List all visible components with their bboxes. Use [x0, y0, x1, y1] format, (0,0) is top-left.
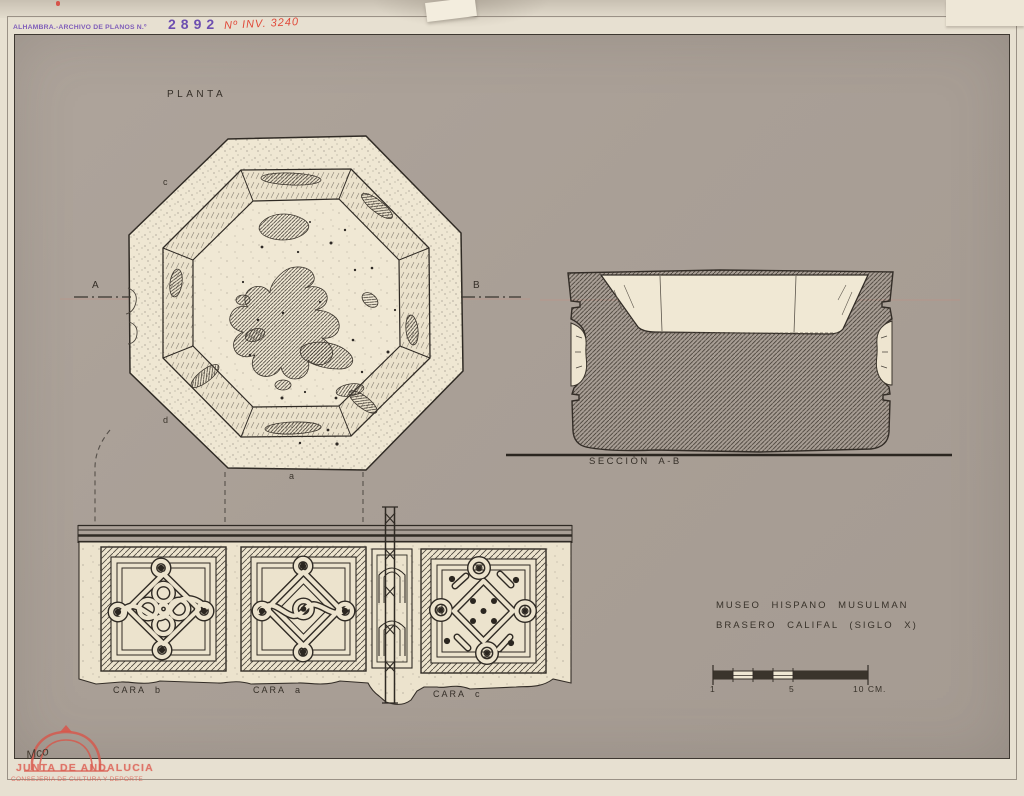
face-letter-a: a [289, 471, 294, 481]
face-letter-c: c [163, 177, 168, 187]
junta-org-text: JUNTA DE ANDALUCIA [16, 762, 154, 774]
section-marker-b: B [473, 280, 481, 291]
caption-museum: MUSEO HISPANO MUSULMAN [716, 600, 909, 611]
scanned-archive-plan: { "stamp": { "archive_label": "ALHAMBRA.… [0, 0, 1024, 796]
cara-b-label: CARA b [113, 685, 162, 695]
junta-stamp: Mco JUNTA DE ANDALUCIA CONSEJERIA DE CUL… [8, 720, 168, 796]
scale-tick-1: 1 [710, 684, 716, 694]
cara-a-label: CARA a [253, 685, 302, 695]
junta-dept-text: CONSEJERIA DE CULTURA Y DEPORTE [11, 776, 143, 783]
face-letter-d: d [163, 415, 168, 425]
elevation-view [78, 507, 572, 704]
section-view [506, 270, 952, 455]
cara-c-label: CARA c [433, 689, 482, 699]
plan-octagon [74, 136, 521, 524]
section-marker-a: A [92, 280, 100, 291]
scale-bar [713, 665, 868, 685]
section-label: SECCIÓN A-B [589, 456, 682, 467]
plan-title: PLANTA [167, 89, 226, 100]
scale-tick-5: 5 [789, 684, 795, 694]
scale-tick-10cm: 10 CM. [853, 684, 886, 694]
technical-drawing-svg [0, 0, 1024, 796]
caption-object: BRASERO CALIFAL (SIGLO X) [716, 620, 918, 631]
